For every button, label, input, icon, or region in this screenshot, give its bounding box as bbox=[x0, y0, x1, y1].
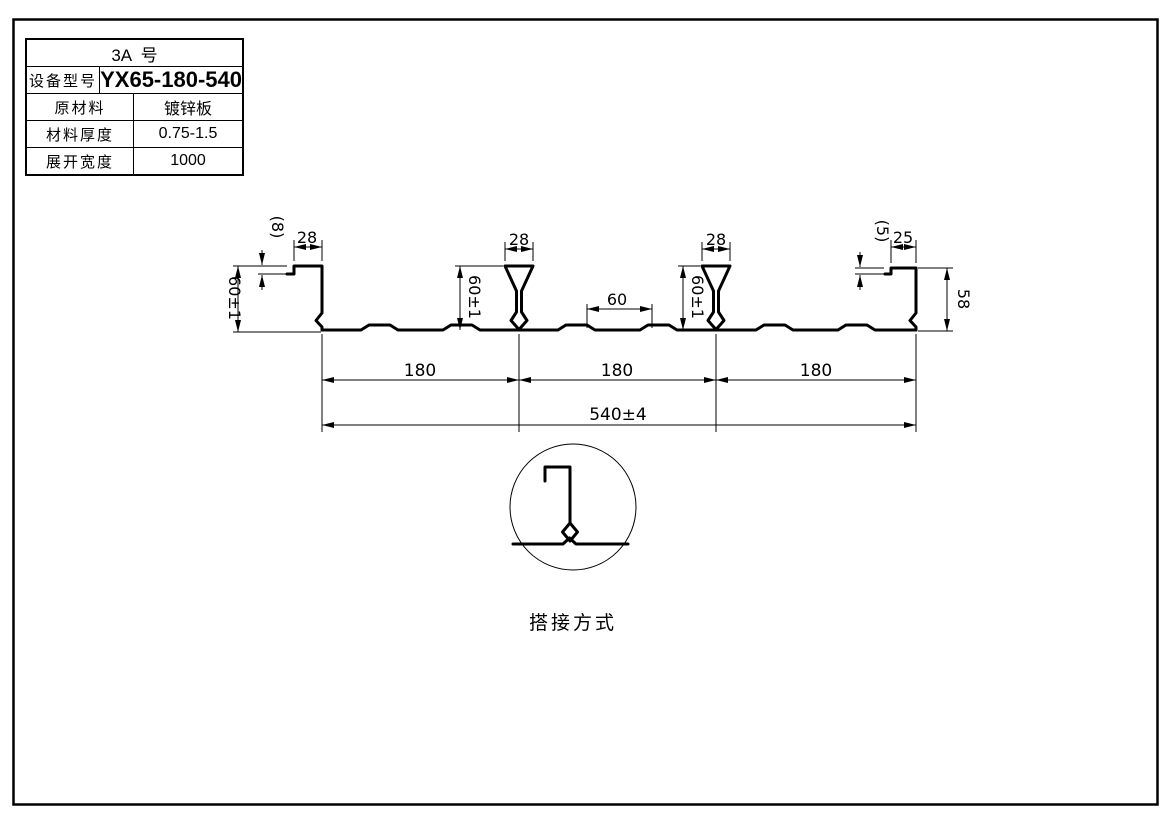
table-row: 设备型号 YX65-180-540 bbox=[27, 66, 242, 93]
dim-left-height-label: 60±1 bbox=[225, 276, 244, 320]
dimension-lines bbox=[238, 247, 947, 425]
dim-pitch-1-label: 180 bbox=[404, 361, 436, 381]
dim-right-flange-label: 25 bbox=[893, 228, 913, 247]
drawing-sheet: 28 (8) 60±1 28 60±1 60 28 60±1 (5) 25 58… bbox=[0, 0, 1169, 827]
dim-right-lip-label: (5) bbox=[873, 220, 892, 243]
profile-bottom-flat bbox=[322, 325, 916, 330]
spec-value-model: YX65-180-540 bbox=[100, 67, 242, 93]
spec-value-unfolded-width: 1000 bbox=[134, 148, 242, 174]
dim-rib2-height-label: 60±1 bbox=[688, 275, 707, 319]
profile-rib-1 bbox=[505, 266, 533, 330]
dim-rib1-width-label: 28 bbox=[509, 230, 529, 249]
dim-pitch-2-label: 180 bbox=[601, 361, 633, 381]
extension-lines bbox=[233, 240, 953, 432]
dim-left-lip-label: (8) bbox=[268, 216, 287, 239]
dim-rib2-width-label: 28 bbox=[706, 230, 726, 249]
spec-label-unfolded-width: 展开宽度 bbox=[27, 148, 134, 174]
detail-hook-edge bbox=[545, 467, 570, 523]
spec-label-raw-material: 原材料 bbox=[27, 94, 134, 120]
dim-rib1-height-label: 60±1 bbox=[465, 275, 484, 319]
dim-pitch-3-label: 180 bbox=[800, 361, 832, 381]
profile-left-edge bbox=[287, 266, 322, 330]
table-row: 材料厚度 0.75-1.5 bbox=[27, 120, 242, 147]
profile-right-edge bbox=[885, 268, 916, 330]
dim-right-height-label: 58 bbox=[954, 289, 973, 309]
dim-mid-spacing-label: 60 bbox=[607, 290, 627, 309]
spec-label-thickness: 材料厚度 bbox=[27, 121, 134, 147]
lap-joint-detail bbox=[510, 444, 636, 570]
spec-value-raw-material: 镀锌板 bbox=[134, 94, 242, 120]
table-row: 原材料 镀锌板 bbox=[27, 93, 242, 120]
spec-label-model: 设备型号 bbox=[27, 67, 100, 93]
spec-table-title: 3A 号 bbox=[27, 40, 242, 66]
dim-left-flange-label: 28 bbox=[297, 228, 317, 247]
detail-circle bbox=[510, 444, 636, 570]
table-row: 展开宽度 1000 bbox=[27, 147, 242, 174]
detail-caption: 搭接方式 bbox=[529, 612, 617, 634]
spec-value-thickness: 0.75-1.5 bbox=[134, 121, 242, 147]
dim-overall-width-label: 540±4 bbox=[589, 405, 647, 425]
spec-table: 3A 号 设备型号 YX65-180-540 原材料 镀锌板 材料厚度 0.75… bbox=[25, 38, 244, 176]
